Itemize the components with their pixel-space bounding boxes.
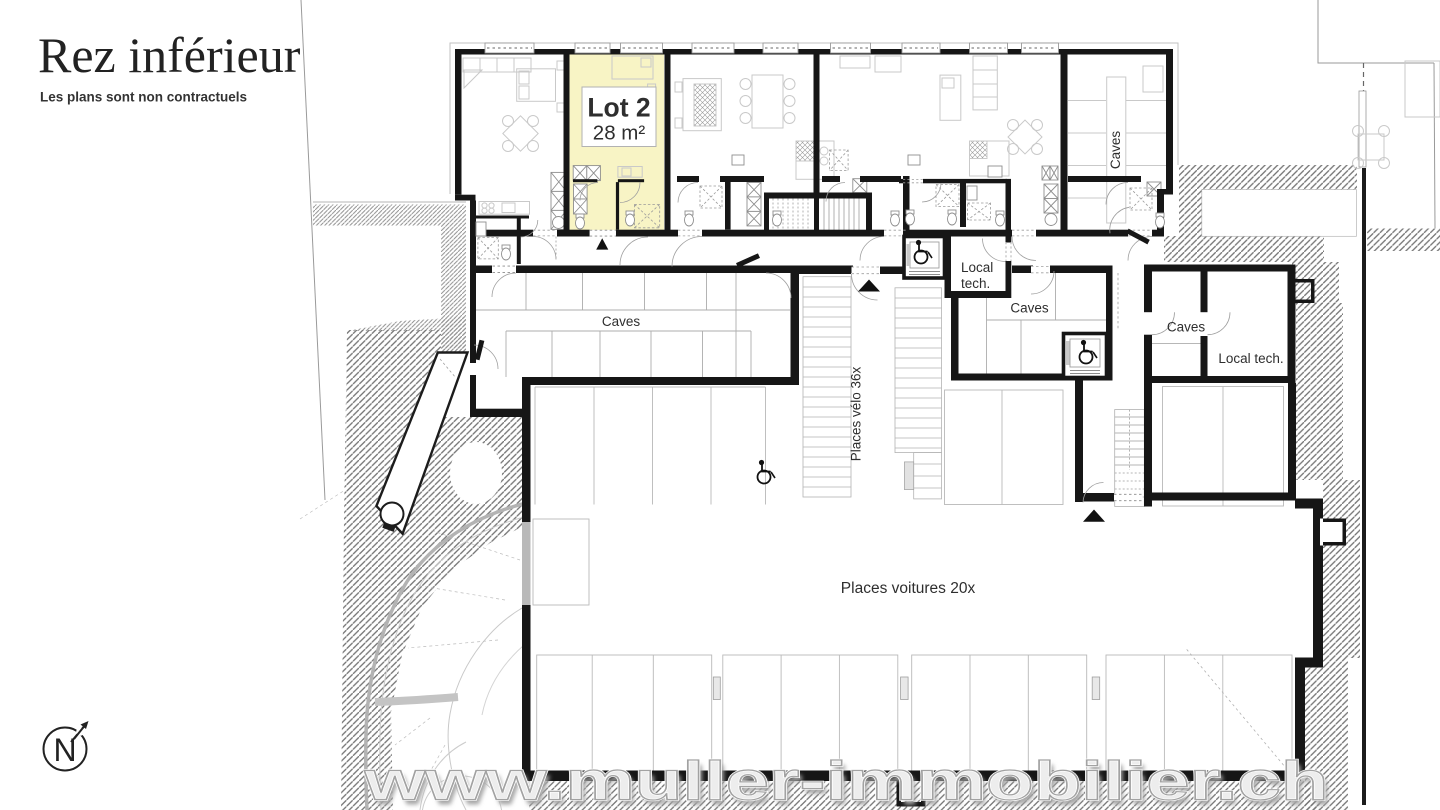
svg-text:Local tech.: Local tech. [1218, 351, 1283, 366]
svg-text:www.muller-immobilier.ch: www.muller-immobilier.ch [363, 750, 1328, 810]
svg-text:Places vélo 36x: Places vélo 36x [849, 366, 864, 461]
svg-text:tech.: tech. [961, 276, 990, 291]
svg-text:Places voitures 20x: Places voitures 20x [841, 580, 976, 597]
svg-text:Lot 2: Lot 2 [587, 93, 650, 123]
svg-text:Caves: Caves [602, 314, 641, 329]
svg-text:Les plans sont non contractuel: Les plans sont non contractuels [40, 90, 247, 105]
svg-text:28 m²: 28 m² [593, 122, 646, 145]
svg-text:Caves: Caves [1108, 131, 1123, 170]
svg-text:Rez inférieur: Rez inférieur [38, 27, 301, 83]
svg-text:Caves: Caves [1167, 320, 1206, 335]
svg-text:Local: Local [961, 260, 993, 275]
svg-text:Caves: Caves [1010, 301, 1049, 316]
svg-text:N: N [53, 732, 76, 768]
